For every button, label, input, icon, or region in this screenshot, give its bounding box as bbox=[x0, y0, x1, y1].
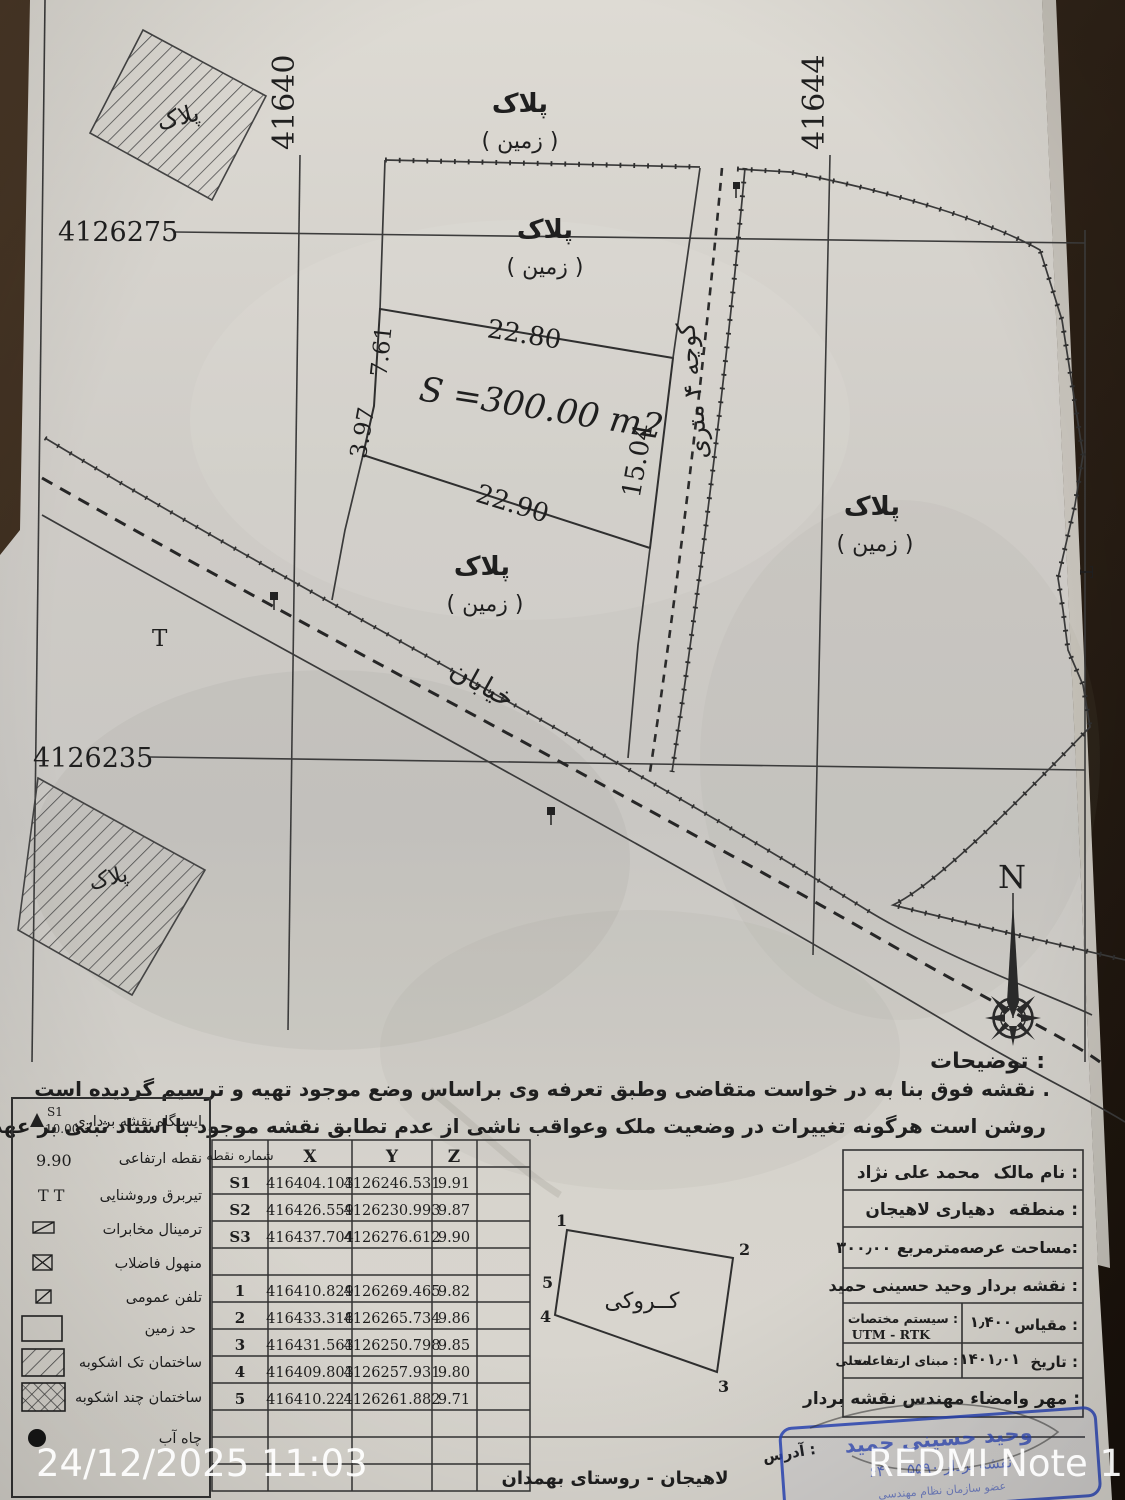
photo-vignette bbox=[0, 0, 1125, 1500]
camera-watermark: REDMI Note 13 bbox=[868, 1442, 1125, 1485]
camera-timestamp: 24/12/2025 11:03 bbox=[36, 1442, 368, 1485]
photographed-survey-map: 41640 41644 4126275 4126235 پلاک پلاک S … bbox=[0, 0, 1125, 1500]
